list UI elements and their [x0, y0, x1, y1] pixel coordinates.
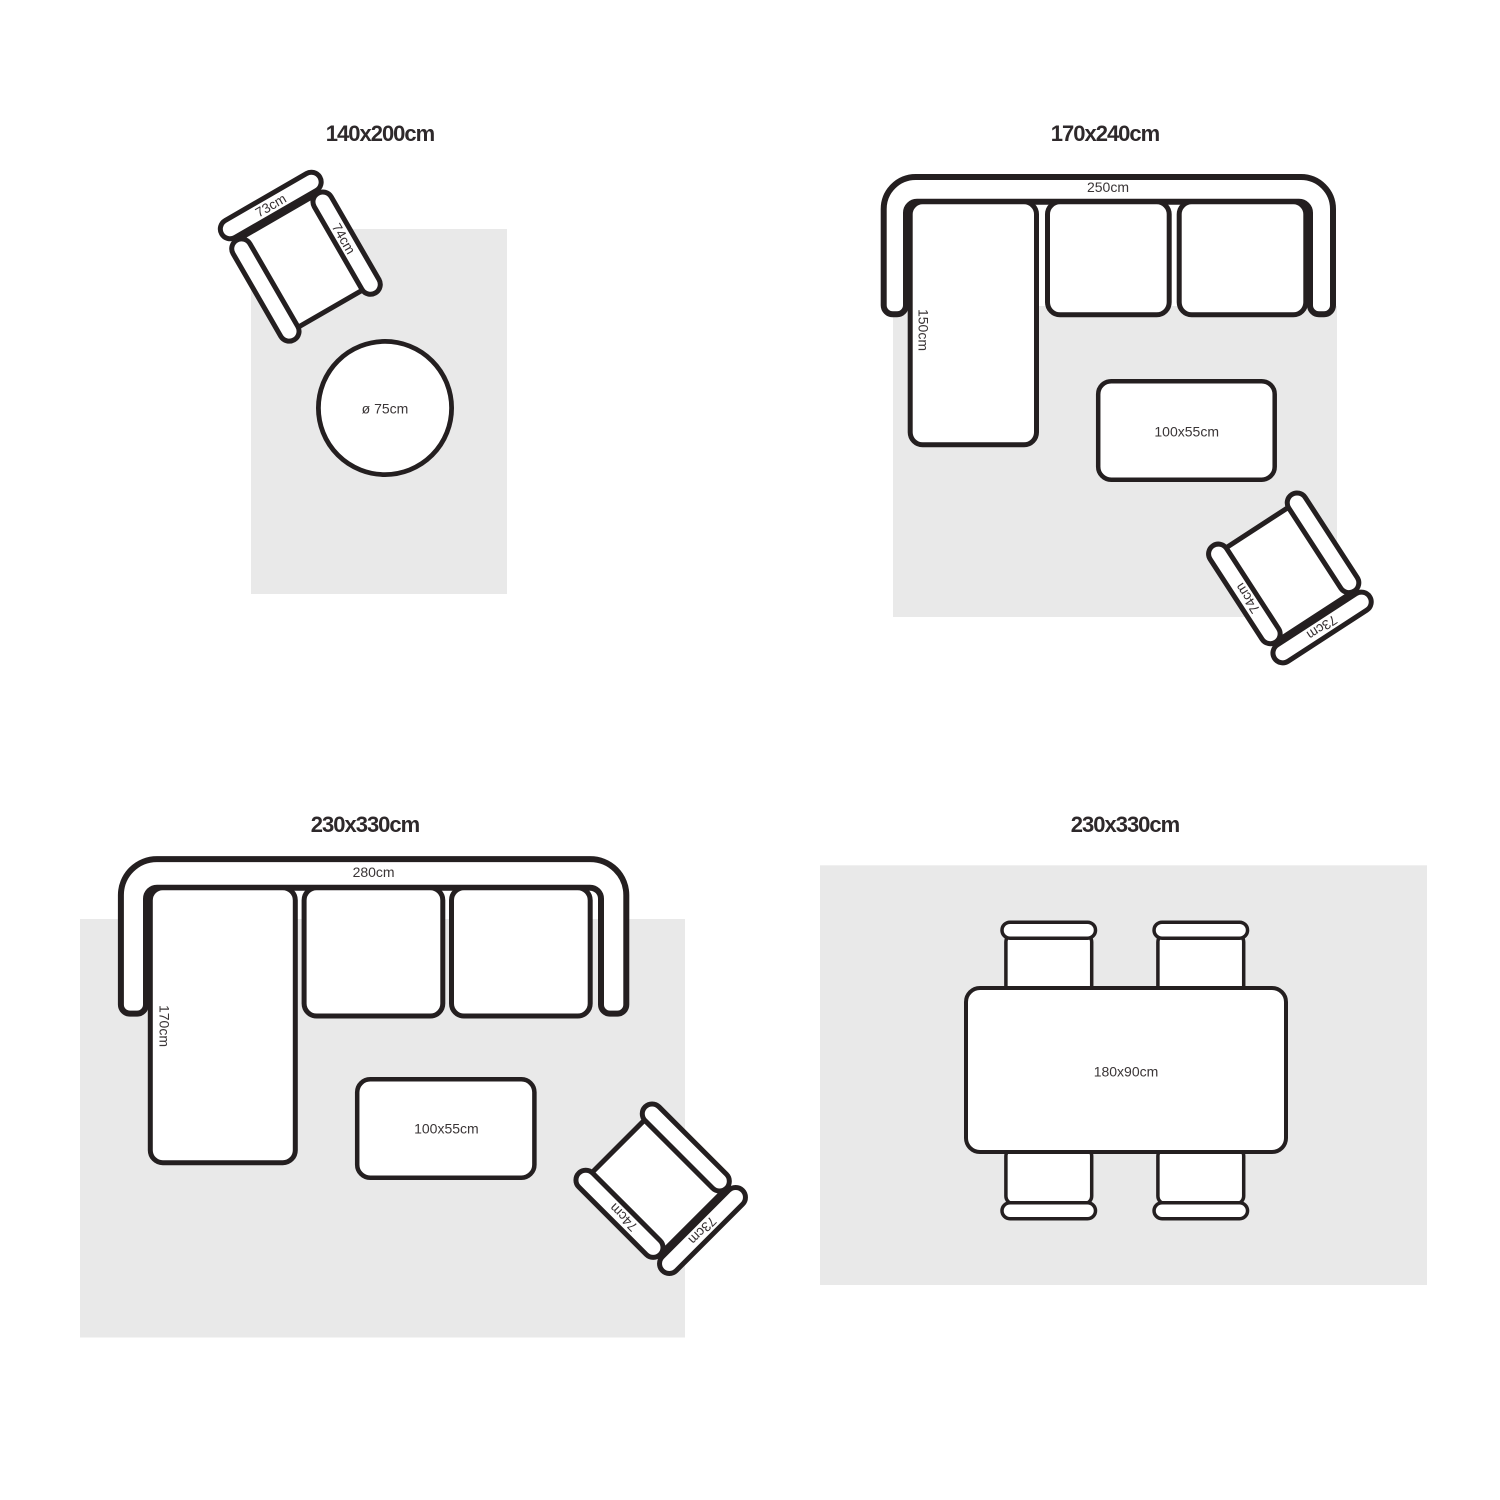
svg-text:170cm: 170cm	[157, 1005, 173, 1047]
svg-text:180x90cm: 180x90cm	[1094, 1064, 1159, 1080]
svg-text:140x200cm: 140x200cm	[326, 121, 435, 146]
svg-text:ø 75cm: ø 75cm	[362, 401, 409, 417]
svg-text:170x240cm: 170x240cm	[1051, 121, 1160, 146]
svg-text:250cm: 250cm	[1087, 179, 1129, 195]
svg-text:100x55cm: 100x55cm	[414, 1121, 479, 1137]
svg-text:230x330cm: 230x330cm	[1071, 812, 1180, 837]
svg-text:230x330cm: 230x330cm	[311, 812, 420, 837]
svg-text:150cm: 150cm	[916, 309, 932, 351]
svg-text:280cm: 280cm	[353, 864, 395, 880]
svg-text:100x55cm: 100x55cm	[1154, 424, 1219, 440]
